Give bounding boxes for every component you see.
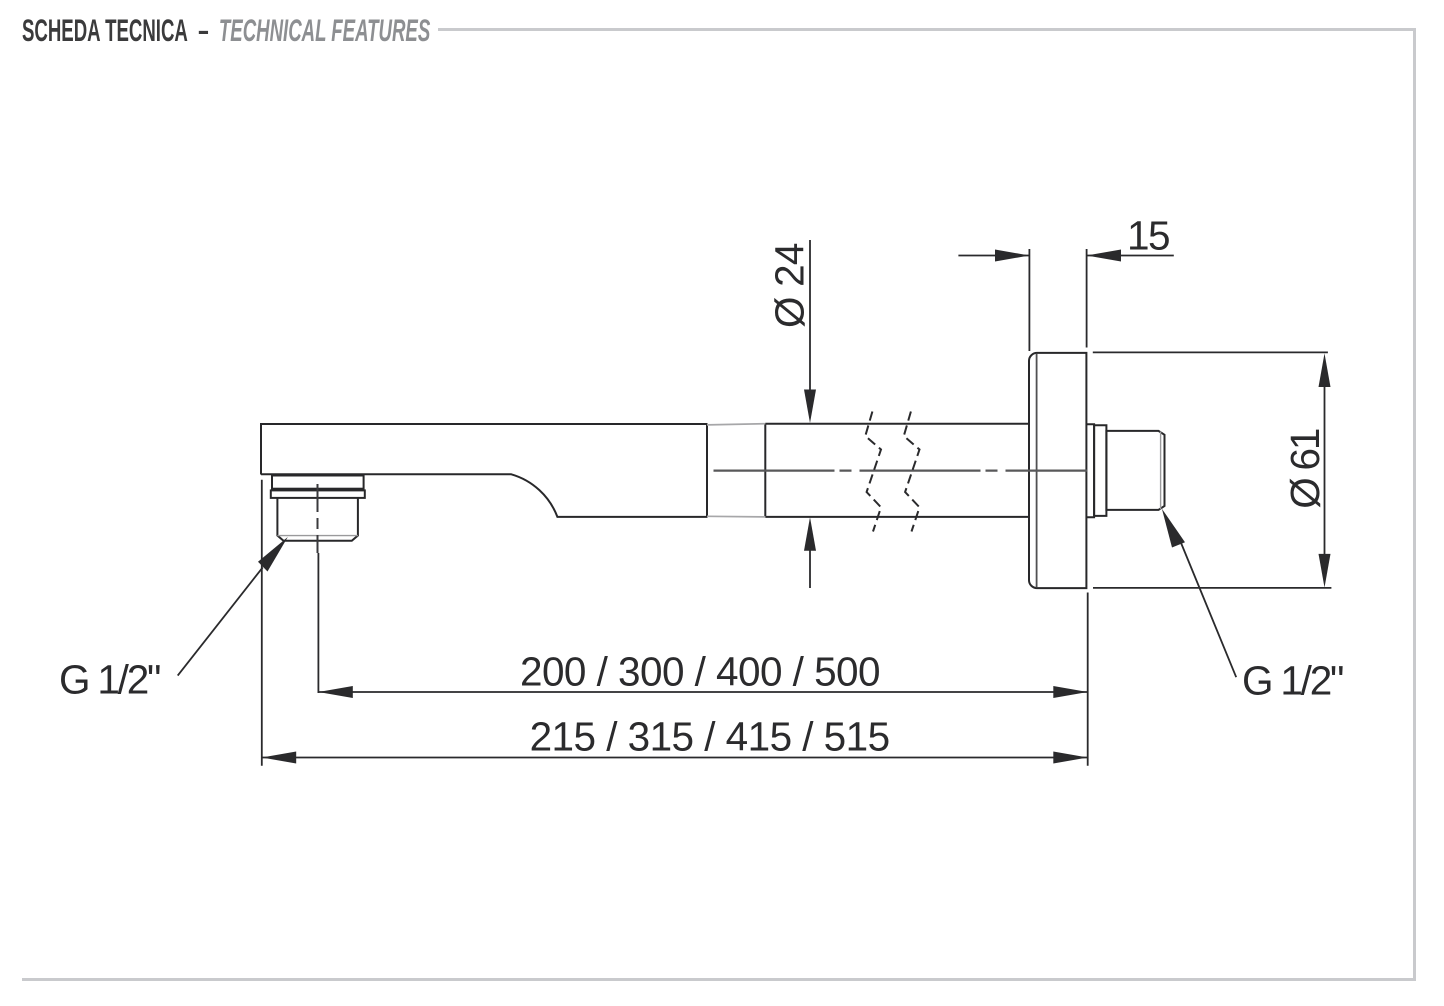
svg-text:200 / 300 / 400 / 500: 200 / 300 / 400 / 500: [520, 649, 880, 695]
svg-text:G 1/2": G 1/2": [59, 656, 160, 702]
svg-text:G 1/2": G 1/2": [1242, 658, 1343, 704]
svg-text:Ø 61: Ø 61: [1282, 429, 1328, 509]
svg-text:Ø 24: Ø 24: [767, 243, 813, 328]
svg-text:215 / 315 / 415 / 515: 215 / 315 / 415 / 515: [530, 714, 890, 760]
svg-text:15: 15: [1127, 212, 1169, 258]
